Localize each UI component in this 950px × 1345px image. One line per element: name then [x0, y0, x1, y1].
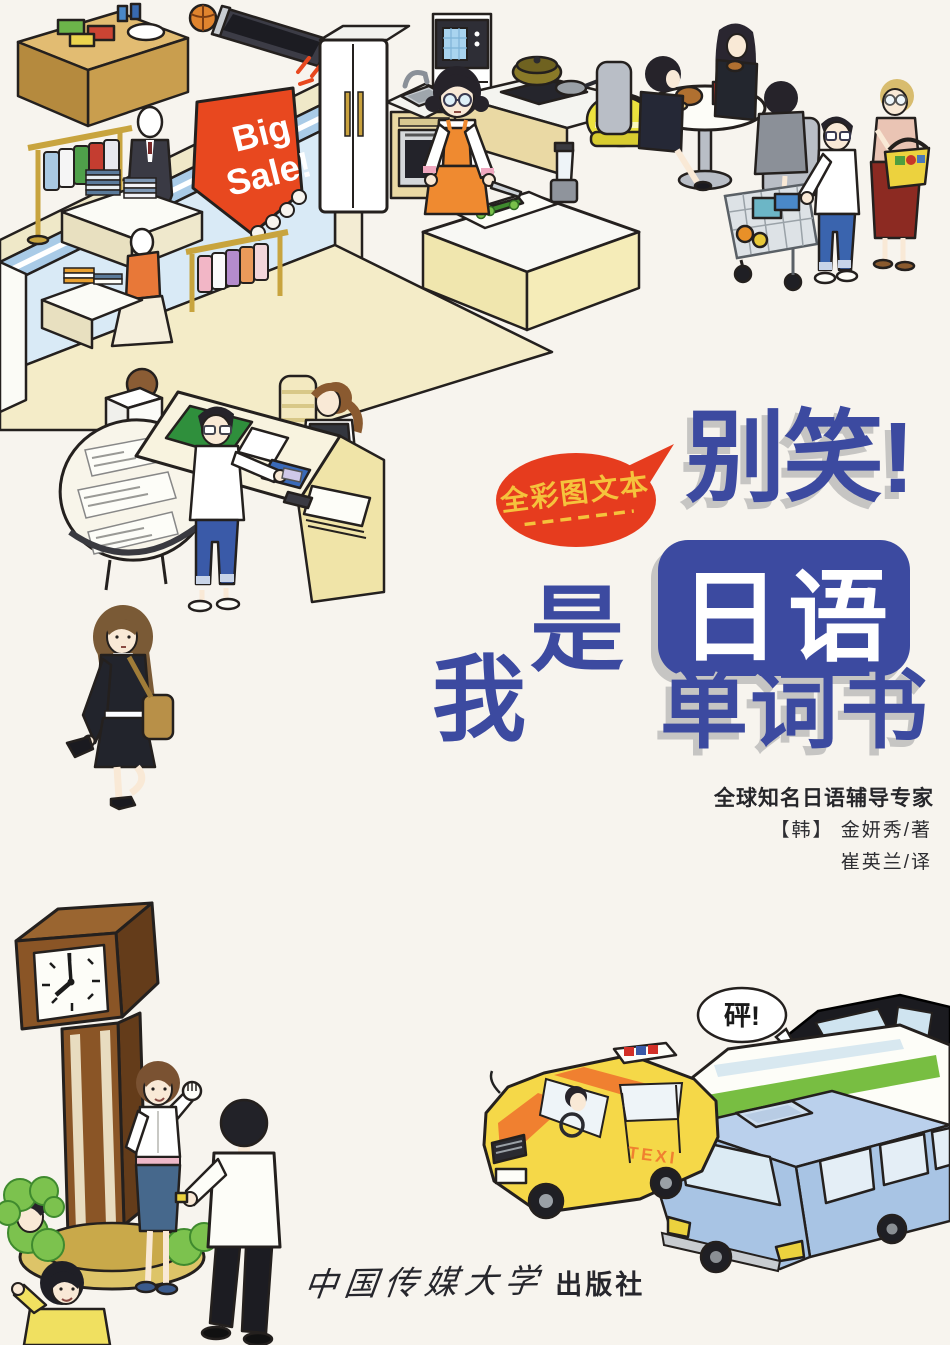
held-shoe	[67, 737, 93, 757]
minute-hand	[69, 953, 71, 982]
title-char-shi: 是	[530, 583, 624, 677]
tagline: 全球知名日语辅导专家	[714, 782, 934, 812]
title-line-2: 日语	[680, 536, 896, 681]
shelf-panel	[0, 262, 26, 412]
book-cover: Big Sale!	[0, 0, 950, 1345]
cafe-chair-left	[597, 62, 631, 134]
grandma-shopper	[871, 79, 929, 270]
publisher-script-name: 中国传媒大学	[302, 1254, 548, 1306]
title-line-3: 单词书	[645, 666, 945, 754]
vehicles-scene: 砰!	[480, 985, 950, 1275]
translator-credit: 崔英兰/译	[841, 847, 932, 874]
crash-sound-text: 砰!	[724, 1001, 760, 1031]
publisher-suffix: 出版社	[555, 1263, 645, 1302]
shoulder-bag	[143, 695, 173, 739]
dining-scene	[585, 0, 950, 300]
publisher-line: 中国传媒大学 出版社	[0, 1256, 950, 1304]
suit-woman	[55, 595, 230, 810]
title-box: 日语	[658, 540, 910, 676]
display-table	[18, 4, 188, 126]
title-char-wo: 我	[432, 653, 526, 747]
title-line-1: 别笑!	[648, 406, 950, 511]
author-credit: 【韩】 金妍秀/著	[770, 815, 932, 842]
diner-woman-top	[715, 23, 757, 120]
man-from-behind	[176, 1100, 280, 1345]
blue-skirt	[136, 1165, 180, 1231]
basketball-icon	[190, 5, 216, 31]
